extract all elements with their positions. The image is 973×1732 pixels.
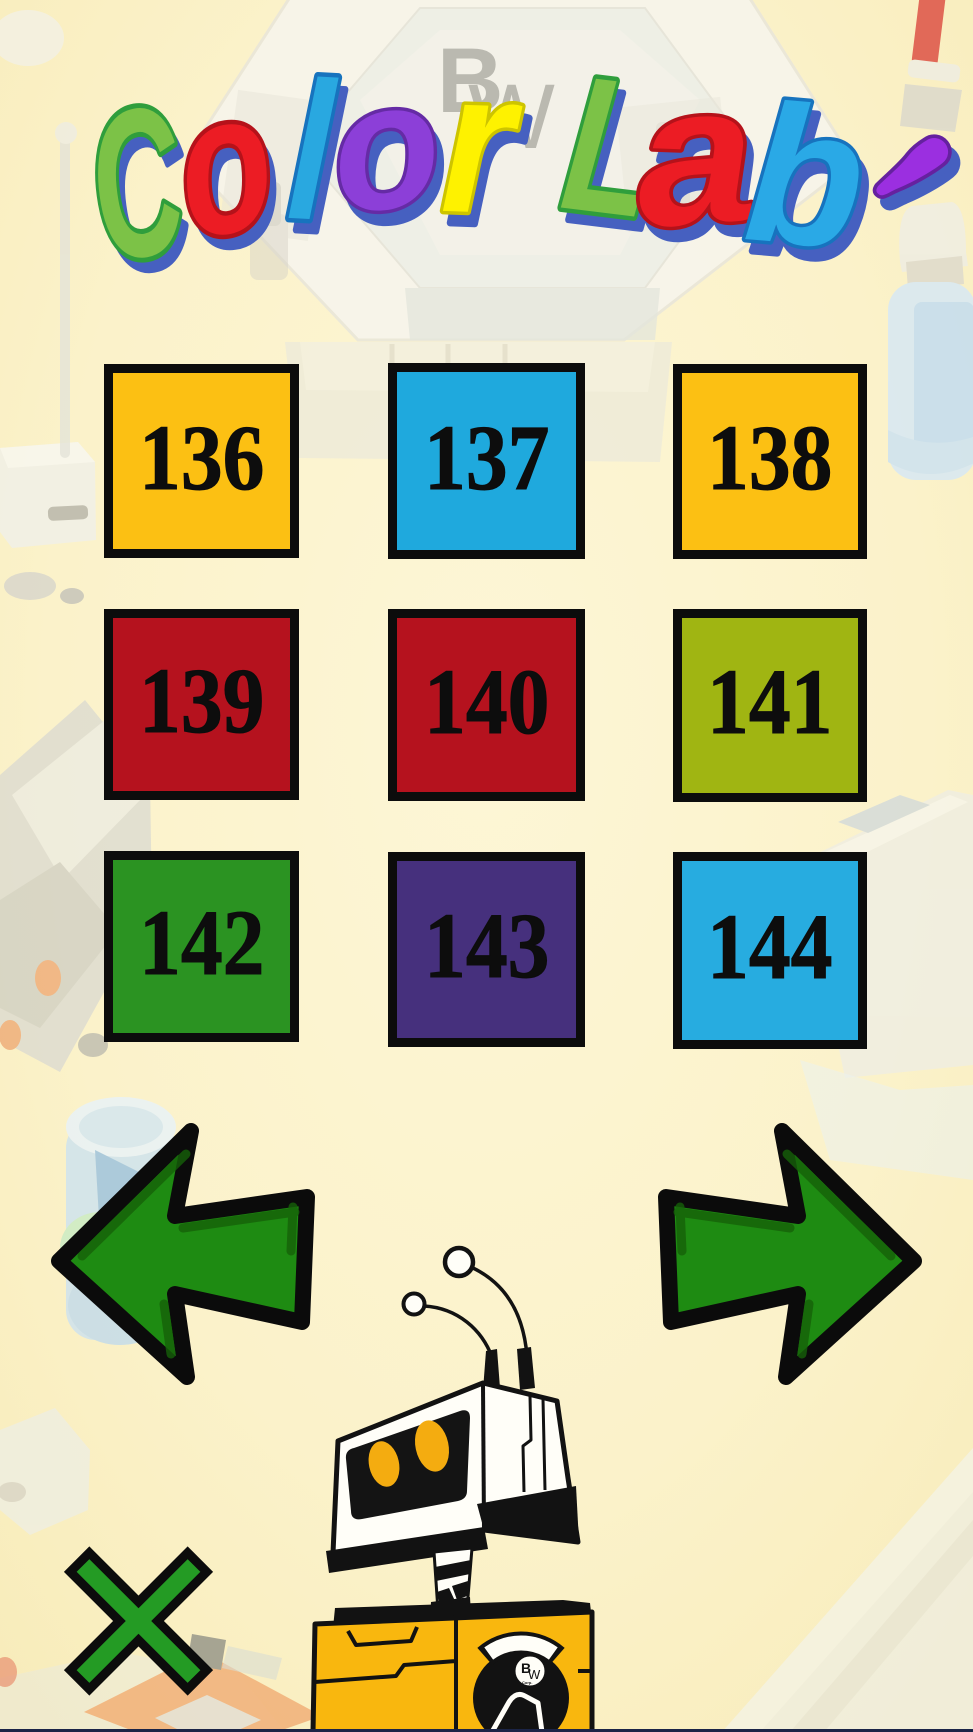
svg-text:Corp.: Corp. xyxy=(522,1680,532,1685)
